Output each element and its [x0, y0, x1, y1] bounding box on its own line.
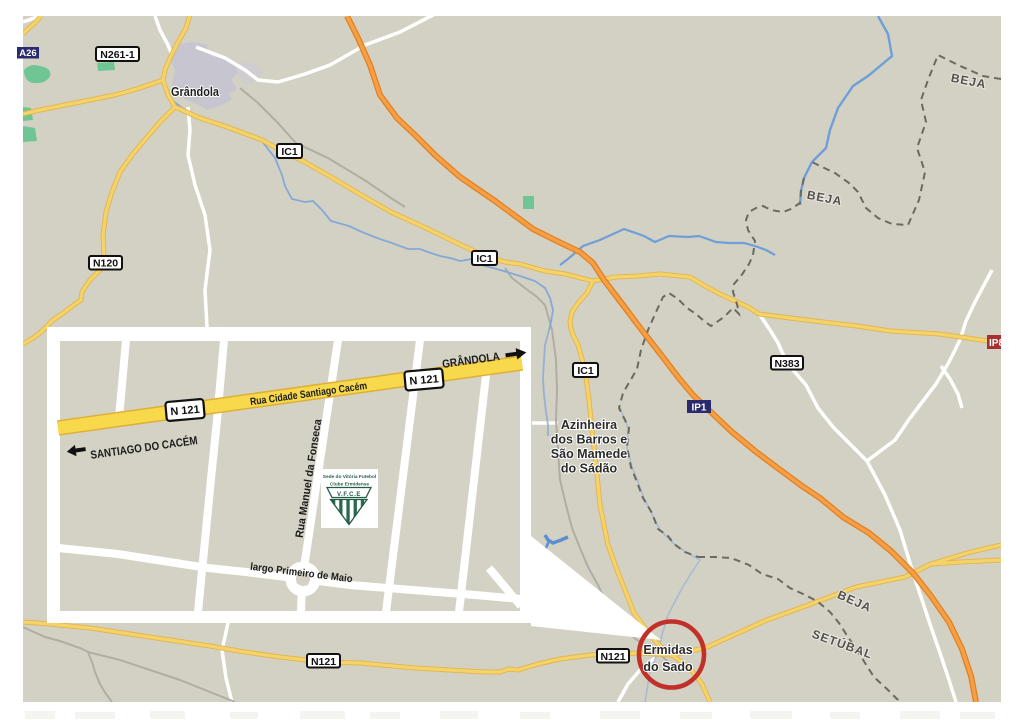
svg-text:N121: N121	[600, 651, 625, 663]
svg-text:Azinheira: Azinheira	[561, 418, 618, 432]
svg-text:N120: N120	[93, 258, 118, 270]
svg-text:Clube Ermidense: Clube Ermidense	[330, 482, 370, 488]
svg-text:São Mamede: São Mamede	[551, 447, 627, 461]
svg-text:N 121: N 121	[409, 373, 439, 388]
svg-text:IC1: IC1	[281, 146, 298, 158]
svg-text:N121: N121	[311, 656, 336, 668]
svg-text:IP1: IP1	[691, 403, 706, 414]
svg-text:IC1: IC1	[476, 253, 493, 265]
svg-text:A26: A26	[19, 48, 36, 59]
svg-text:Grândola: Grândola	[171, 85, 220, 99]
svg-text:N383: N383	[774, 358, 799, 370]
svg-text:do Sádão: do Sádão	[561, 462, 618, 476]
svg-text:Sede do Vitória Futebol: Sede do Vitória Futebol	[323, 474, 376, 480]
svg-text:N261-1: N261-1	[100, 49, 135, 61]
svg-text:V.F.C.E: V.F.C.E	[337, 492, 361, 498]
svg-text:Ermidas: Ermidas	[643, 643, 692, 657]
svg-text:N 121: N 121	[170, 404, 200, 419]
svg-text:IC1: IC1	[577, 365, 594, 377]
svg-text:do Sado: do Sado	[643, 660, 693, 674]
svg-text:dos Barros e: dos Barros e	[551, 433, 627, 447]
